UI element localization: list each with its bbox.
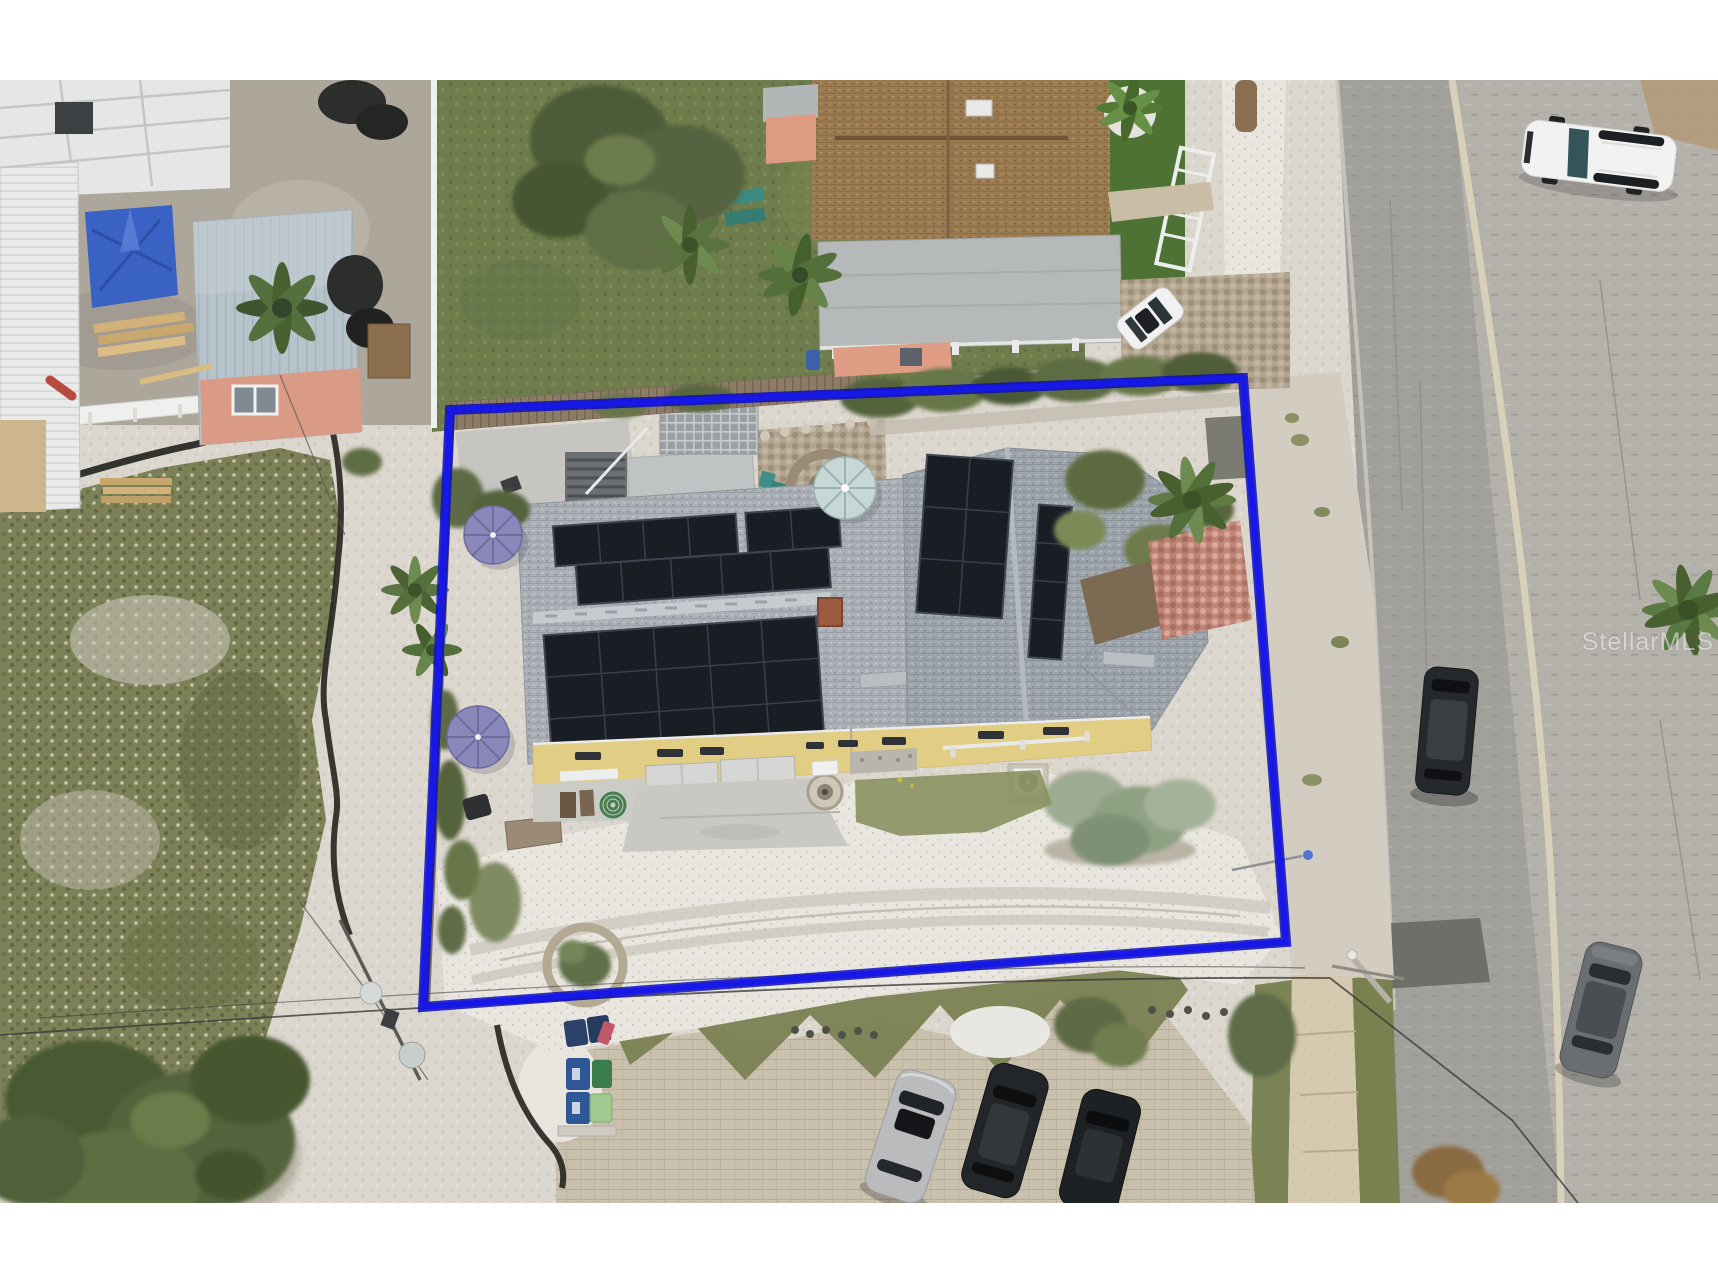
light-green-bin <box>590 1094 612 1122</box>
pallet <box>558 1126 616 1136</box>
palm-tree <box>650 205 730 285</box>
roof-vent <box>966 100 992 116</box>
aerial-photo: StellarMLS <box>0 80 1718 1203</box>
transformer <box>399 1042 425 1068</box>
tan-awning <box>0 420 46 512</box>
palm-trunk <box>1235 80 1257 132</box>
green-recycle-bin <box>592 1060 612 1088</box>
roof-vent <box>976 164 994 178</box>
rooftop-ac <box>55 102 93 134</box>
wood-crate <box>368 324 410 378</box>
transformer <box>360 982 382 1004</box>
brown-shingle-roof <box>812 80 1110 240</box>
navy-bin <box>563 1019 588 1048</box>
doorway <box>900 348 922 366</box>
pebble-strip <box>850 748 917 774</box>
recycle-bins <box>558 1015 616 1136</box>
utility-box <box>812 760 839 775</box>
carport-roof <box>818 235 1122 350</box>
bush <box>1228 993 1296 1077</box>
salmon-wall <box>200 368 362 445</box>
lumber-pile <box>100 478 172 503</box>
blue-lamp <box>1303 850 1313 860</box>
aerial-photo-canvas <box>0 80 1718 1203</box>
bush <box>342 448 382 476</box>
solar-array-west <box>536 506 855 762</box>
white-fence-lawn-west <box>431 80 437 428</box>
shed-salmon <box>766 114 816 164</box>
grass-strip-east <box>1352 975 1400 1203</box>
door-mat <box>560 792 576 818</box>
white-rock-pocket <box>950 1006 1050 1058</box>
chimney <box>818 598 842 626</box>
door-mat <box>579 790 594 817</box>
palm-tree <box>236 262 328 354</box>
black-materials <box>327 255 383 315</box>
blue-trash-can <box>806 350 820 370</box>
